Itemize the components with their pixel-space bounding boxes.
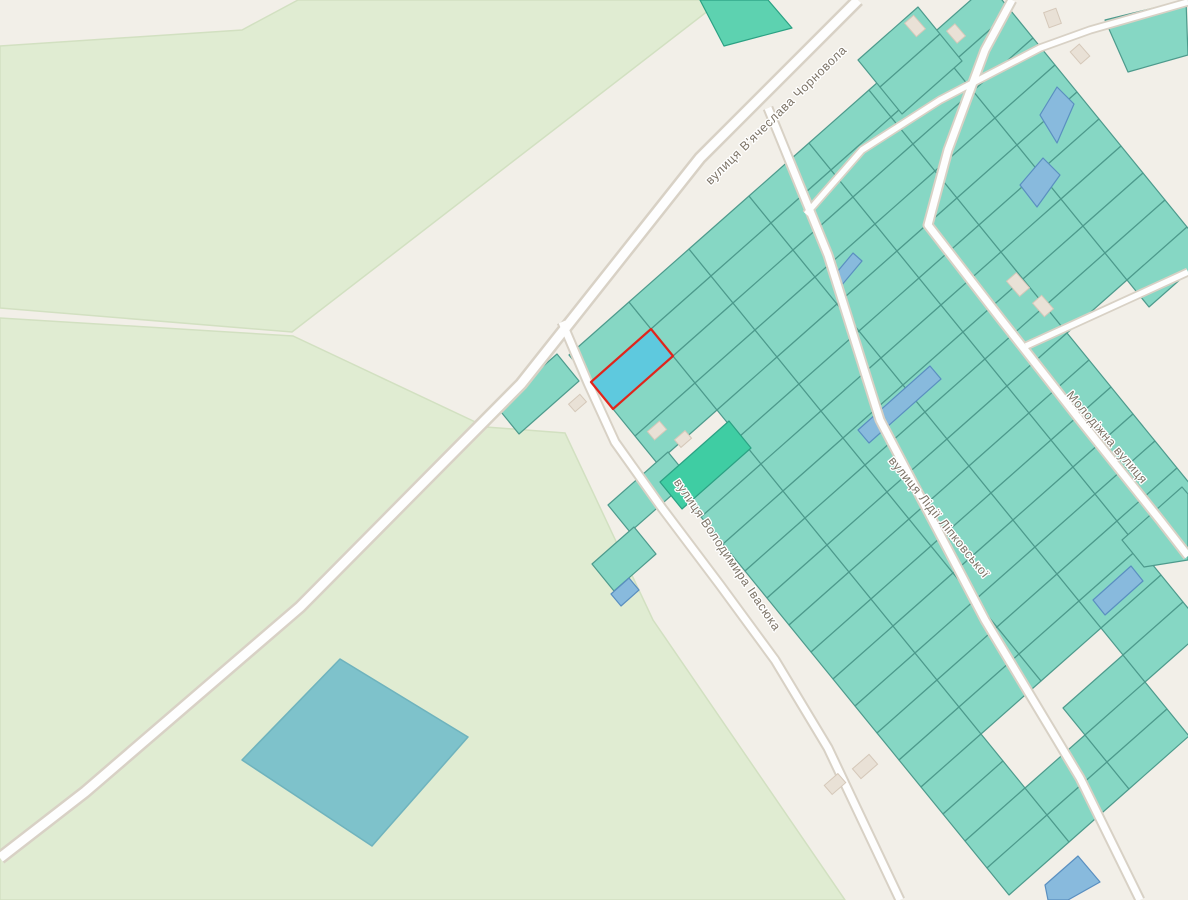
map-viewport[interactable]: вулиця В'ячеслава Чорноволавулиця Володи… <box>0 0 1188 900</box>
map-canvas[interactable]: вулиця В'ячеслава Чорноволавулиця Володи… <box>0 0 1188 900</box>
